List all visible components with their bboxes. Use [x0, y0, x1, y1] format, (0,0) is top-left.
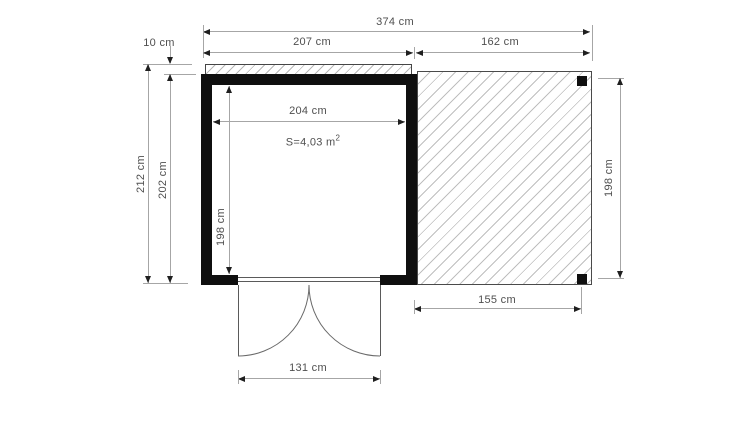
dim-interior-depth-line — [229, 86, 230, 274]
dim-arrow — [373, 376, 380, 382]
extension-line — [581, 287, 582, 314]
extension-line — [598, 278, 624, 279]
dim-pergola-floor-width-label: 155 cm — [478, 294, 516, 306]
extension-line — [143, 283, 188, 284]
dim-arrow — [167, 276, 173, 283]
dim-pergola-floor-width-line — [414, 308, 581, 309]
dim-pergola-depth-line — [620, 78, 621, 278]
extension-line — [414, 300, 415, 314]
dim-arrow — [167, 74, 173, 81]
dim-interior-width-label: 204 cm — [289, 105, 327, 117]
dim-arrow — [167, 57, 173, 64]
dim-arrow — [238, 376, 245, 382]
pergola-post-bottom — [577, 274, 587, 284]
door-swing-arc-left — [238, 285, 309, 356]
dim-total-depth-label: 212 cm — [135, 155, 147, 193]
dim-total-width-label: 374 cm — [376, 16, 414, 28]
dim-arrow — [398, 119, 405, 125]
door-leaf-left — [238, 285, 239, 356]
dim-arrow — [574, 306, 581, 312]
dim-arrow — [617, 271, 623, 278]
extension-line — [414, 47, 415, 59]
pergola-post-top — [577, 76, 587, 86]
dim-total-depth-line — [148, 64, 149, 283]
dim-interior-depth-label: 198 cm — [215, 208, 227, 246]
floor-area-label: S=4,03 m2 — [286, 134, 341, 149]
dim-door-width-line — [238, 378, 380, 379]
floor-plan-canvas: 374 cm 207 cm 162 cm 10 cm 212 cm 202 cm… — [0, 0, 750, 422]
dim-door-width-label: 131 cm — [289, 362, 327, 374]
dim-pergola-width-line — [416, 52, 590, 53]
dim-total-width-line — [203, 31, 590, 32]
door-threshold-line — [238, 277, 380, 278]
extension-line — [592, 25, 593, 61]
door-leaf-right — [380, 285, 381, 356]
door-swing-arc-right — [309, 285, 380, 356]
dim-building-width-line — [203, 52, 413, 53]
door-threshold-line — [238, 281, 380, 282]
dim-arrow — [416, 50, 423, 56]
dim-arrow — [213, 119, 220, 125]
floor-area-superscript: 2 — [336, 134, 341, 143]
dim-arrow — [226, 267, 232, 274]
dim-building-depth-label: 202 cm — [157, 161, 169, 199]
dim-arrow — [226, 86, 232, 93]
dim-interior-width-line — [213, 121, 405, 122]
dim-building-depth-line — [170, 74, 171, 283]
dim-pergola-depth-label: 198 cm — [603, 159, 615, 197]
pergola-hatched-area — [417, 71, 592, 285]
dim-arrow — [145, 64, 151, 71]
extension-line — [380, 370, 381, 384]
dim-arrow — [583, 50, 590, 56]
floor-area-text: S=4,03 m — [286, 136, 336, 148]
dim-arrow — [617, 78, 623, 85]
dim-arrow — [414, 306, 421, 312]
dim-arrow — [583, 29, 590, 35]
dim-arrow — [406, 50, 413, 56]
dim-arrow — [203, 50, 210, 56]
dim-arrow — [145, 276, 151, 283]
dim-building-width-label: 207 cm — [293, 36, 331, 48]
dim-arrow — [203, 29, 210, 35]
dim-pergola-width-label: 162 cm — [481, 36, 519, 48]
extension-line — [238, 370, 239, 384]
